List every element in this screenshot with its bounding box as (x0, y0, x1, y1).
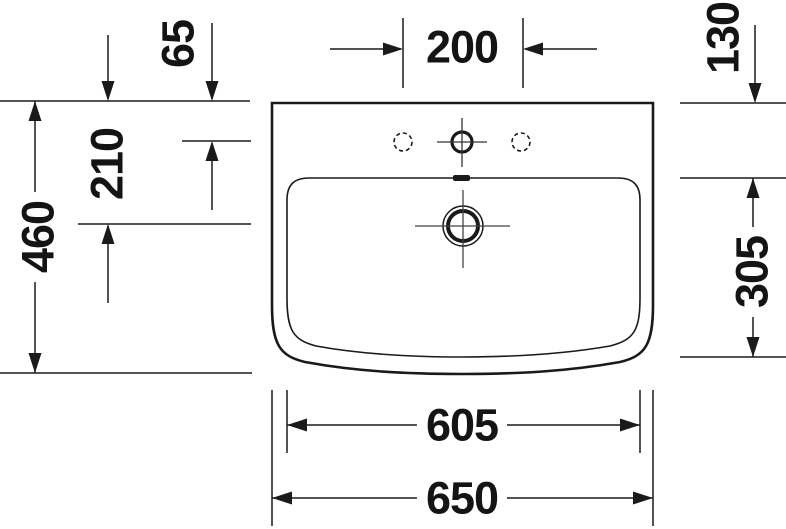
arrowhead-460-top (29, 101, 42, 121)
dim-label-overall-width: 650 (417, 474, 507, 523)
arrowhead-65-down (206, 81, 219, 101)
arrowhead-130-down (749, 83, 762, 103)
arrowhead-200-left (523, 43, 543, 56)
arrowhead-460-bottom (29, 353, 42, 373)
faucet-hole-left (394, 133, 412, 151)
dim-label-rear-ledge-depth: 130 (701, 2, 746, 74)
arrowhead-65-up (206, 141, 219, 161)
dim-label-rim-to-drain: 210 (85, 128, 130, 200)
arrowhead-305-top (747, 178, 760, 198)
dim-label-overall-depth: 460 (14, 192, 63, 282)
arrowhead-200-right (383, 43, 403, 56)
arrowhead-305-bottom (747, 337, 760, 357)
technical-drawing-canvas: 65 200 130 210 460 305 605 650 (0, 0, 786, 529)
arrowhead-650-right (633, 492, 653, 505)
arrowhead-210-up (102, 224, 115, 244)
arrowhead-605-right (620, 419, 640, 432)
dim-label-bowl-depth: 305 (728, 227, 777, 317)
arrowhead-605-left (287, 419, 307, 432)
faucet-hole-right (512, 133, 530, 151)
dim-label-faucet-hole-spacing: 200 (426, 25, 498, 70)
drawing-linework (0, 0, 786, 529)
dim-label-bowl-width: 605 (417, 401, 507, 450)
dim-label-rim-to-faucet: 65 (156, 20, 201, 68)
arrowhead-210-down (102, 81, 115, 101)
arrowhead-650-left (272, 492, 292, 505)
overflow-mark (453, 175, 470, 181)
